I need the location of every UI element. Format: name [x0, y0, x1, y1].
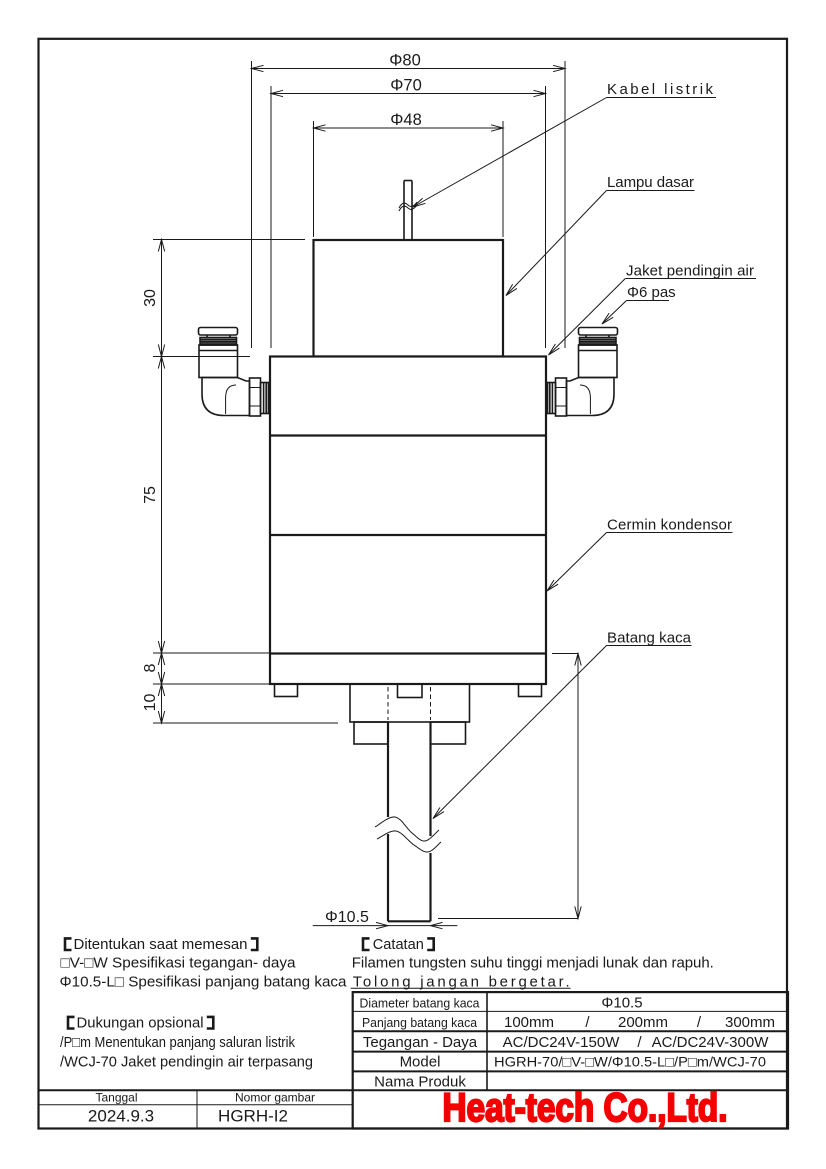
svg-text:8: 8 — [142, 663, 159, 672]
svg-text:Φ6 pas: Φ6 pas — [627, 284, 676, 301]
svg-text:Catatan: Catatan — [373, 936, 424, 953]
svg-text:Heat-tech Co.,Ltd.: Heat-tech Co.,Ltd. — [443, 1086, 728, 1130]
svg-text:Model: Model — [400, 1054, 441, 1071]
svg-text:HGRH-70/□V-□W/Φ10.5-L□/P□m/WCJ: HGRH-70/□V-□W/Φ10.5-L□/P□m/WCJ-70 — [494, 1054, 766, 1070]
svg-text:Lampu dasar: Lampu dasar — [607, 174, 694, 191]
svg-text:Φ80: Φ80 — [389, 52, 421, 70]
svg-text:Batang kaca: Batang kaca — [607, 630, 692, 647]
svg-text:Panjang batang kaca: Panjang batang kaca — [362, 1015, 478, 1030]
svg-text:Tegangan - Daya: Tegangan - Daya — [363, 1034, 478, 1051]
svg-text:Cermin kondensor: Cermin kondensor — [607, 517, 732, 534]
svg-text:2024.9.3: 2024.9.3 — [88, 1107, 154, 1126]
svg-text:Diameter batang kaca: Diameter batang kaca — [360, 996, 481, 1011]
svg-text:HGRH-I2: HGRH-I2 — [218, 1107, 288, 1126]
svg-text:Nomor gambar: Nomor gambar — [235, 1091, 315, 1105]
svg-text:10: 10 — [142, 694, 159, 712]
svg-text:Φ10.5: Φ10.5 — [601, 995, 642, 1012]
svg-text:/P□m Menentukan panjang salura: /P□m Menentukan panjang saluran listrik — [60, 1034, 295, 1051]
svg-text:□V-□W Spesifikasi tegangan- da: □V-□W Spesifikasi tegangan- daya — [61, 955, 297, 972]
svg-text:/WCJ-70 Jaket pendingin air te: /WCJ-70 Jaket pendingin air terpasang — [60, 1054, 313, 1071]
svg-text:Φ70: Φ70 — [390, 77, 422, 95]
svg-text:Φ10.5: Φ10.5 — [325, 909, 369, 926]
svg-text:100mm/200mm/300mm: 100mm/200mm/300mm — [504, 1014, 775, 1031]
svg-text:Ditentukan saat memesan: Ditentukan saat memesan — [74, 936, 248, 953]
svg-text:Filamen tungsten suhu tinggi m: Filamen tungsten suhu tinggi menjadi lun… — [352, 955, 714, 972]
svg-text:75: 75 — [142, 486, 159, 504]
svg-text:Dukungan opsional: Dukungan opsional — [77, 1015, 204, 1032]
svg-text:Tanggal: Tanggal — [95, 1091, 137, 1105]
svg-text:Φ10.5-L□ Spesifikasi panjang b: Φ10.5-L□ Spesifikasi panjang batang kaca — [60, 974, 348, 991]
svg-text:30: 30 — [142, 289, 159, 307]
svg-text:Jaket pendingin air: Jaket pendingin air — [626, 263, 754, 280]
svg-text:Φ48: Φ48 — [390, 111, 422, 129]
